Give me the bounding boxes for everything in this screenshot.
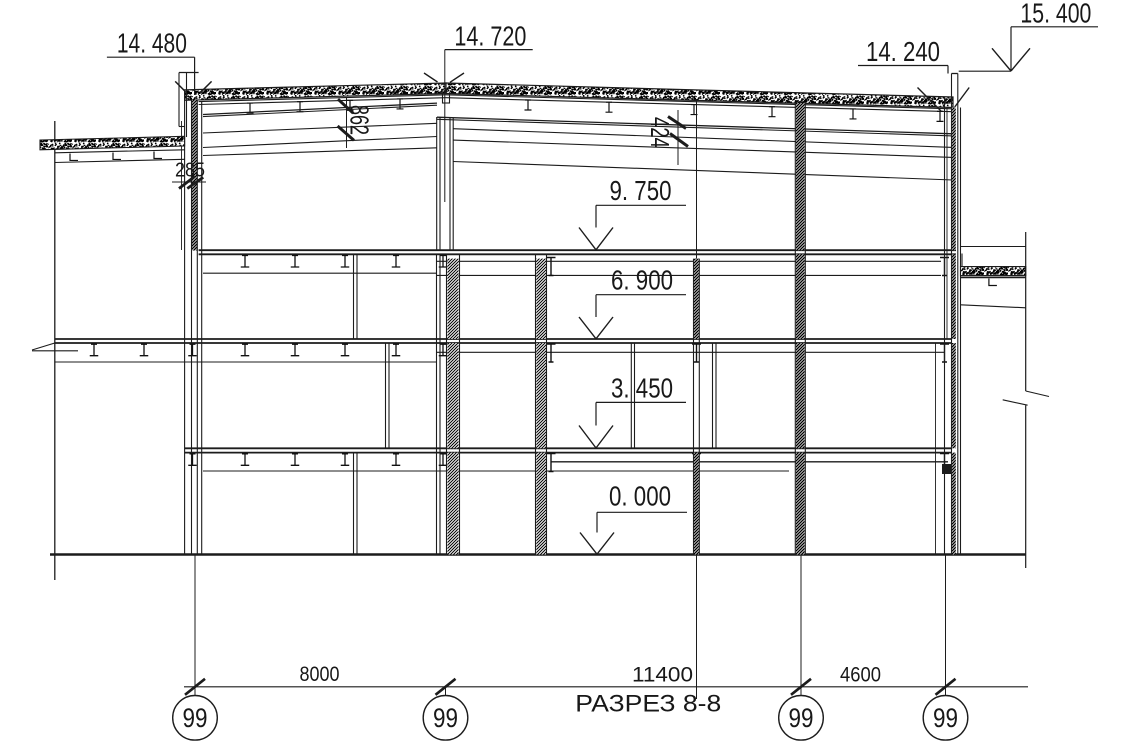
svg-text:99: 99 [183, 703, 208, 733]
svg-text:15. 400: 15. 400 [1020, 0, 1091, 29]
svg-text:8000: 8000 [300, 663, 340, 686]
svg-text:3. 450: 3. 450 [611, 372, 673, 403]
svg-text:14. 720: 14. 720 [454, 21, 526, 52]
svg-text:4600: 4600 [840, 664, 881, 687]
svg-text:99: 99 [433, 703, 458, 733]
svg-text:14. 240: 14. 240 [866, 36, 940, 67]
svg-text:99: 99 [789, 703, 814, 733]
svg-text:9. 750: 9. 750 [610, 175, 672, 206]
svg-text:99: 99 [933, 703, 958, 733]
svg-text:424: 424 [645, 117, 675, 148]
svg-text:РАЗРЕЗ 8-8: РАЗРЕЗ 8-8 [575, 691, 721, 718]
svg-text:6. 900: 6. 900 [611, 264, 673, 295]
svg-text:11400: 11400 [632, 664, 693, 687]
svg-text:14. 480: 14. 480 [117, 28, 187, 59]
svg-text:0. 000: 0. 000 [609, 480, 671, 511]
svg-text:862: 862 [345, 105, 375, 135]
